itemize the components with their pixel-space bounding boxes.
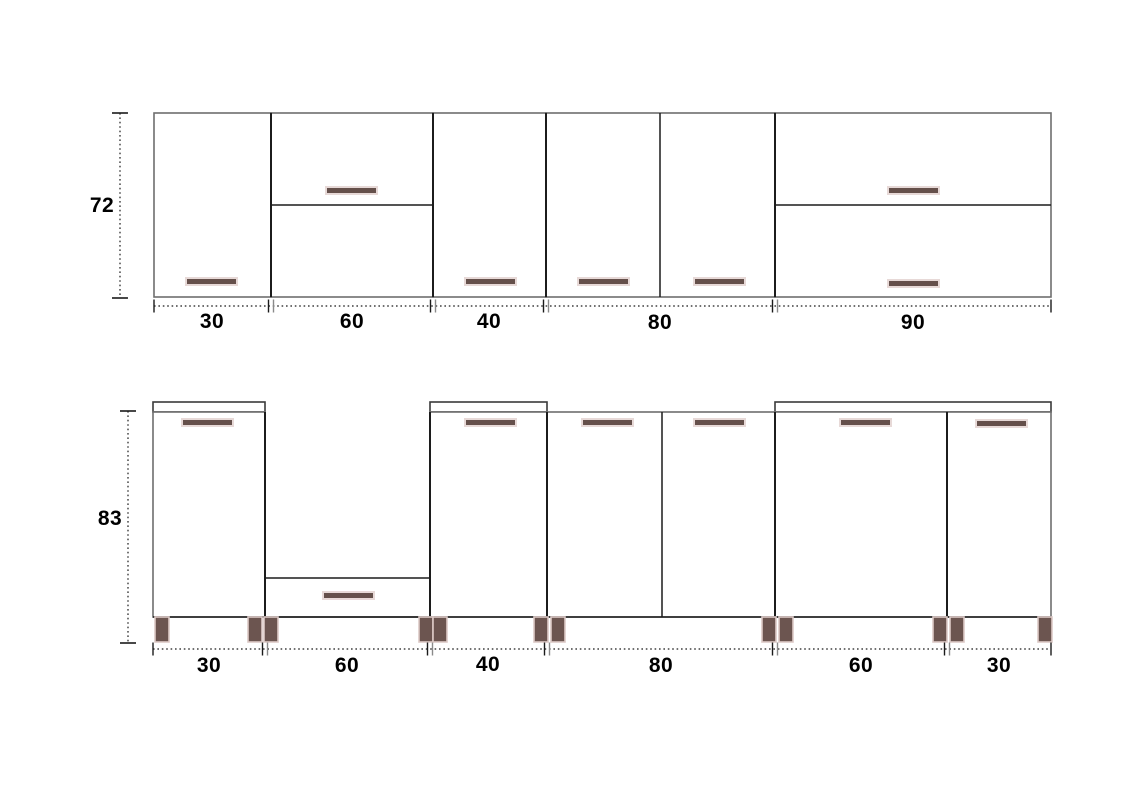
wall-cabinet-handle	[326, 187, 377, 194]
base-width-label-6: 30	[987, 654, 1011, 678]
wall-cabinet-1	[154, 113, 271, 297]
wall-cabinet-handle	[888, 187, 939, 194]
wall-height-label: 72	[90, 194, 114, 218]
base-cabinet-4	[547, 412, 775, 617]
wall-cabinet-handle	[186, 278, 237, 285]
wall-cabinet-3	[433, 113, 546, 297]
wall-cabinet-handle	[888, 280, 939, 287]
wall-width-label-1: 30	[200, 310, 224, 334]
base-cabinet-1	[153, 412, 265, 617]
base-width-label-5: 60	[849, 654, 873, 678]
base-cabinet-handle	[323, 592, 374, 599]
cabinet-leg	[779, 617, 793, 642]
cabinet-leg	[1038, 617, 1052, 642]
countertop	[153, 402, 265, 412]
base-cabinet-handle	[582, 419, 633, 426]
wall-width-label-3: 40	[477, 310, 501, 334]
wall-width-label-4: 80	[648, 311, 672, 335]
cabinet-leg	[264, 617, 278, 642]
cabinet-leg	[433, 617, 447, 642]
base-width-label-3: 40	[476, 653, 500, 677]
cabinet-leg	[950, 617, 964, 642]
base-cabinet-6	[947, 412, 1051, 617]
cabinet-leg	[551, 617, 565, 642]
base-cabinet-handle	[976, 420, 1027, 427]
elevation-canvas: 30 60 40 80 90 30 60 40 80 60 30 72 83	[0, 0, 1124, 796]
base-height-label: 83	[98, 507, 122, 531]
cabinet-leg	[762, 617, 776, 642]
wall-cabinet-handle	[465, 278, 516, 285]
base-cabinet-handle	[465, 419, 516, 426]
cabinet-leg	[419, 617, 433, 642]
base-width-label-2: 60	[335, 654, 359, 678]
cabinet-leg	[534, 617, 548, 642]
wall-width-label-5: 90	[901, 311, 925, 335]
cabinet-leg	[155, 617, 169, 642]
countertop	[430, 402, 547, 412]
wall-cabinet-handle	[578, 278, 629, 285]
base-width-label-1: 30	[197, 654, 221, 678]
base-cabinet-3	[430, 412, 547, 617]
base-cabinet-handle	[840, 419, 891, 426]
cabinet-leg	[933, 617, 947, 642]
base-cabinet-handle	[182, 419, 233, 426]
countertop	[775, 402, 1051, 412]
base-width-label-4: 80	[649, 654, 673, 678]
base-cabinet-handle	[694, 419, 745, 426]
cabinet-leg	[248, 617, 262, 642]
wall-width-label-2: 60	[340, 310, 364, 334]
wall-cabinet-handle	[694, 278, 745, 285]
cabinet-elevation-drawing	[0, 0, 1124, 796]
base-cabinet-5	[775, 412, 947, 617]
